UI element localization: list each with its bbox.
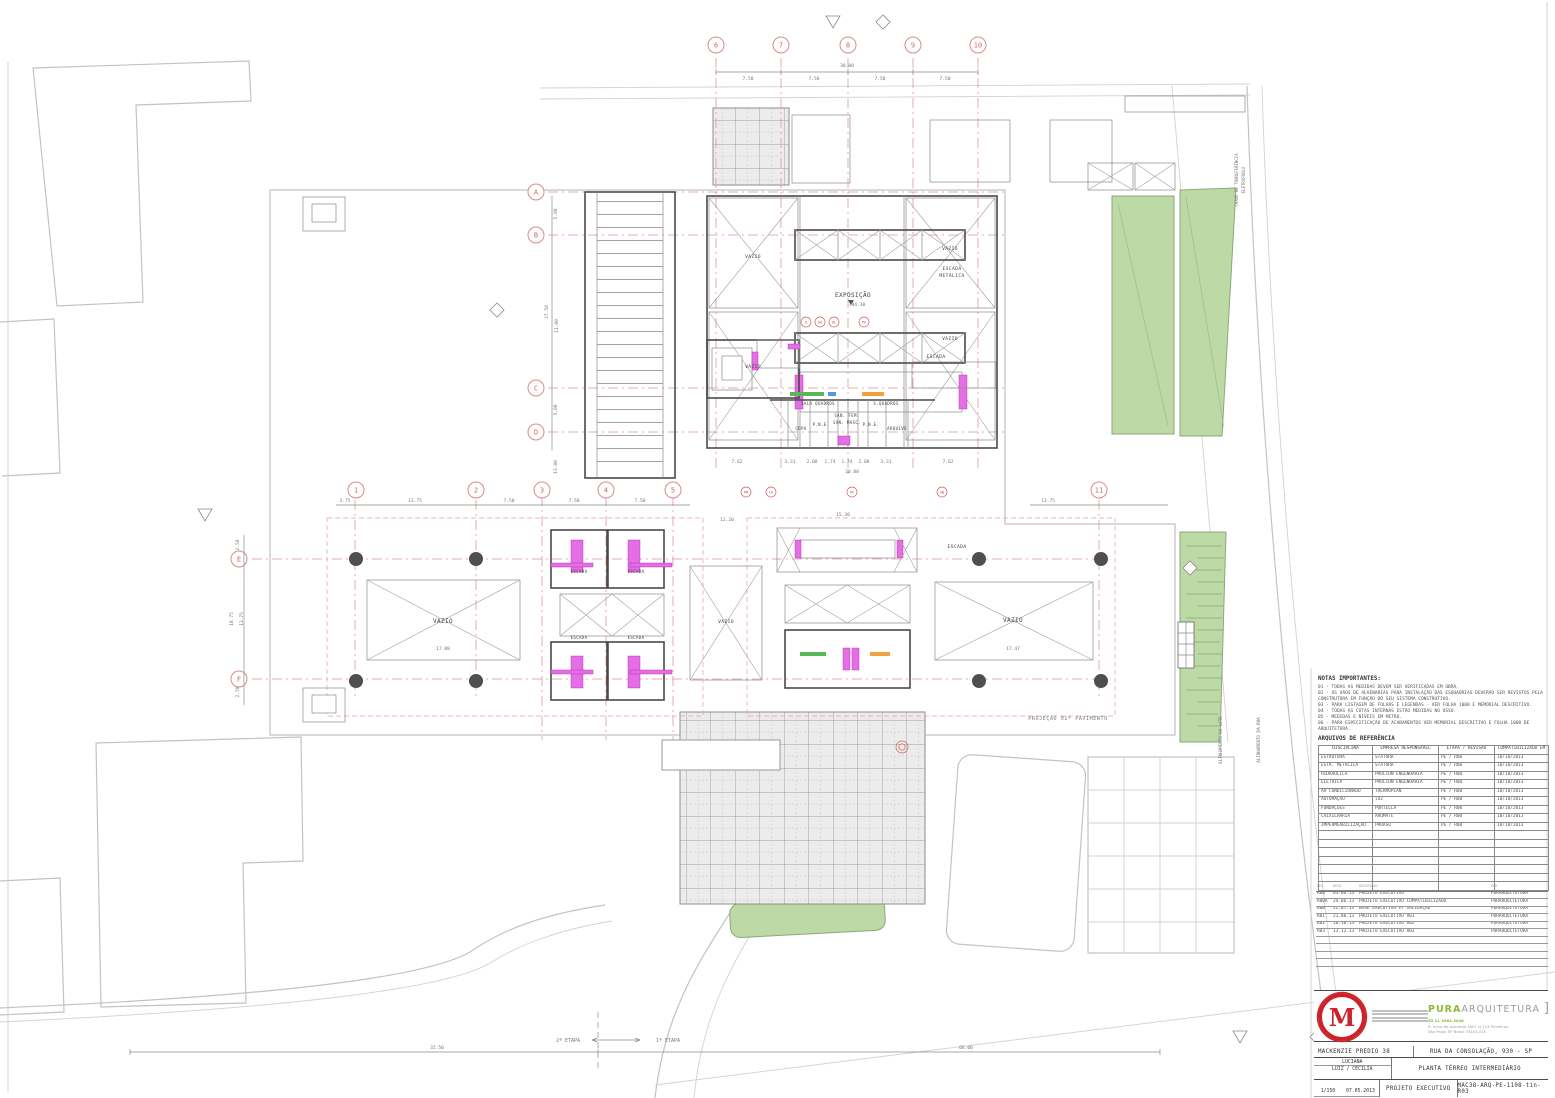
grid-col-2: 2 [474,487,478,495]
svg-text:1.74: 1.74 [824,459,835,465]
grid-col-1: 1 [354,487,358,495]
grid-row-D: D [534,429,538,437]
table-row: HIDRÁULICAPROCION ENGENHARIAPE / R0018/1… [1319,771,1549,780]
coordination-names: LUIZ / CECILIA [1314,1066,1391,1072]
chave-label-1: CHAVE DE TRANSFERÊNCIA [1234,153,1239,207]
table-row: R0121.08.13PROJETO EXECUTIVO R01PURARQUI… [1316,914,1548,922]
dim-total-top: 30.00 [840,63,854,69]
svg-text:7.50: 7.50 [808,76,819,82]
room-exposicao: EXPOSIÇÃO [835,292,871,299]
svg-text:7.62: 7.62 [942,459,953,465]
mackenzie-logo: M [1318,993,1366,1041]
table-row: ELÉTRICAPROCION ENGENHARIAPE / R0018/10/… [1319,780,1549,789]
grid-col-6: 6 [714,42,718,50]
grid-col-9: 9 [911,42,915,50]
svg-text:13.75: 13.75 [239,612,245,626]
project-phase: PROJETO EXECUTIVO [1379,1080,1457,1097]
table-row: R0003.06.13PROJETO EXECUTIVOPURARQUITETU… [1316,891,1548,899]
reference-files-block: ARQUIVOS DE REFERÊNCIA DISCIPLINA EMPRES… [1318,736,1552,891]
svg-text:7.50: 7.50 [939,76,950,82]
section-marker-icon [490,303,504,317]
room-sala-quadros: SALA QUADROS [801,401,835,406]
drawing-scale: 1/150 [1314,1080,1342,1097]
floor-slab-outline [270,190,1175,735]
svg-text:2.08: 2.08 [806,459,817,465]
table-row: R00A24.06.13PROJETO EXECUTIVO COMPATIBIL… [1316,899,1548,907]
svg-text:5.00: 5.00 [553,404,559,415]
room-labels: VAZIO VAZIO VAZIO VAZIO VAZIO VAZIO VAZI… [433,246,1023,640]
svg-text:ESCADA: ESCADA [628,569,645,574]
svg-text:ESCADA: ESCADA [571,635,588,640]
firm-phone: 55 11 3064.3048 [1428,1018,1464,1023]
etapa1-label: 1ª ETAPA [656,1038,680,1044]
table-row: R0313.12.13PROJETO EXECUTIVO R03PURARQUI… [1316,929,1548,937]
grid-col-11: 11 [1095,487,1103,495]
grid-row-C: C [534,385,538,393]
svg-text:VAZIO: VAZIO [942,336,958,342]
svg-text:VAZIO: VAZIO [745,254,761,260]
professors-micro-text [1372,1008,1428,1024]
svg-text:1.74: 1.74 [841,459,852,465]
svg-text:7.50: 7.50 [874,76,885,82]
table-row: AR CONDICIONADOTHERMOPLANPE / R0018/10/2… [1319,788,1549,797]
svg-text:PG: PG [862,321,866,325]
table-row: FUNDAÇÕESPORTELLAPE / R0018/10/2013 [1319,805,1549,814]
svg-text:COPA: COPA [795,426,806,431]
top-walkway [713,96,1245,190]
drawing-sheet: { "plan": { "grid": { "cols": ["1","2","… [0,0,1555,1098]
svg-text:A: A [805,321,808,325]
svg-text:VAZIO: VAZIO [1003,617,1023,624]
svg-text:7.50: 7.50 [742,76,753,82]
svg-text:3.31: 3.31 [784,459,795,465]
svg-text:27.50: 27.50 [544,305,550,319]
svg-text:2.50: 2.50 [235,539,241,550]
chave-label-2: ELETROPAULO [1241,166,1246,193]
svg-text:3.75: 3.75 [339,498,350,504]
firm-bracket: ] [1543,1001,1551,1016]
svg-text:11.00: 11.00 [554,319,560,333]
svg-text:17.88: 17.88 [436,646,450,652]
grid-row-E: E [237,556,241,564]
svg-text:2.50: 2.50 [235,686,241,697]
svg-text:PM: PM [744,491,749,495]
svg-text:CA: CA [769,491,774,495]
svg-text:7.62: 7.62 [731,459,742,465]
grid-col-7: 7 [779,42,783,50]
table-row: AUTOMAÇÃOid2PE / R0018/10/2013 [1319,797,1549,806]
svg-text:15.30: 15.30 [836,512,850,518]
grid-col-5: 5 [671,487,675,495]
title-block: M PURAARQUITETURA] 55 11 3064.3048 R. Ar… [1314,990,1548,1097]
table-row: IMPERMEABILIZAÇÃOPROASOPE / R0018/10/201… [1319,822,1549,831]
grid-col-10: 10 [974,42,982,50]
svg-text:7.50: 7.50 [634,498,645,504]
reference-table: DISCIPLINA EMPRESA RESPONSÁVEL ETAPA / R… [1318,745,1549,891]
svg-text:13.00: 13.00 [553,460,559,474]
project-name: MACKENZIE PREDIO 38 [1314,1046,1413,1057]
section-marker-icon [198,509,212,521]
skylight-roof-grid [662,712,925,904]
svg-text:METÁLICA: METÁLICA [939,272,964,279]
author-name: LUCIANA [1314,1058,1391,1066]
table-row: R0B22.07.13BASE EXECUTIVO P/ VALIDAÇÃOPU… [1316,906,1548,914]
table-row: ESTRUTURASTATURAPE / R0018/10/2013 [1319,754,1549,763]
svg-text:VAZIO: VAZIO [942,246,958,252]
svg-text:P.N.E.: P.N.E. [863,422,880,427]
svg-text:PE: PE [850,491,854,495]
svg-text:VAZIO: VAZIO [718,619,734,625]
grid-row-F: F [237,676,241,684]
svg-text:30.80: 30.80 [845,469,859,475]
alinhamento-lote-label: ALINHAMENTO DO LOTE [1218,716,1223,764]
alinhamento-rua-label: ALINHAMENTO DA RUA [1256,717,1261,763]
svg-text:ESCADA: ESCADA [571,569,588,574]
svg-text:ESCADA: ESCADA [628,635,645,640]
drawing-date: 07.05.2013 [1342,1080,1379,1097]
svg-text:VAZIO: VAZIO [433,618,453,625]
svg-text:13.75: 13.75 [408,498,422,504]
svg-text:AL: AL [832,321,836,325]
svg-text:7.50: 7.50 [503,498,514,504]
dim-etapa2: 32.50 [430,1045,444,1051]
svg-text:13.75: 13.75 [1041,498,1055,504]
table-row: R0218.10.13PROJETO EXECUTIVO R02PURARQUI… [1316,921,1548,929]
svg-text:12.20: 12.20 [720,517,734,523]
grid-col-4: 4 [604,487,608,495]
svg-text:ESCADA: ESCADA [927,354,946,360]
grid-col-3: 3 [540,487,544,495]
section-marker-icon [826,16,840,28]
projecao-label: PROJEÇÃO 01º PAVIMENTO [1028,715,1107,722]
svg-text:ESCADA: ESCADA [943,266,962,272]
middle-band [349,528,1108,700]
svg-text:GA: GA [818,321,823,325]
grid-col-8: 8 [846,42,850,50]
table-row: ESTR. METÁLICASTATURAPE / R0018/10/2013 [1319,763,1549,772]
svg-text:SAN. MASC.: SAN. MASC. [833,420,861,425]
project-address: RUA DA CONSOLAÇÃO, 930 - SP [1413,1046,1548,1057]
svg-text:3.31: 3.31 [880,459,891,465]
etapa2-label: 2ª ETAPA [556,1038,580,1044]
svg-text:GB: GB [940,491,944,495]
dim-etapa1: 66.00 [959,1045,973,1051]
svg-text:17.47: 17.47 [1006,646,1020,652]
firm-logo: PURAARQUITETURA] [1428,997,1551,1016]
svg-text:2.08: 2.08 [858,459,869,465]
revision-table: REV. DATA DESCRIÇÃO POR R0003.06.13PROJE… [1316,884,1548,967]
upper-building [707,196,997,448]
notes-block: NOTAS IMPORTANTES: 01 - TODAS AS MEDIDAS… [1318,676,1552,734]
revision-block: REV. DATA DESCRIÇÃO POR R0003.06.13PROJE… [1316,884,1550,967]
svg-text:P.N.E.: P.N.E. [813,422,830,427]
svg-text:VAZIO: VAZIO [745,364,761,370]
firm-address-1: R. Artur de Azevedo 1857 cj 114 Pinheiro… [1428,1024,1508,1029]
firm-address-2: São Paulo SP Brasil 05404-015 [1428,1029,1486,1034]
structural-grid-lines [252,58,1115,740]
detail-tags: A GA AL PG PM CA PE GB [741,317,947,497]
reference-title: ARQUIVOS DE REFERÊNCIA [1318,736,1552,742]
notes-title: NOTAS IMPORTANTES: [1318,676,1552,682]
svg-text:SAN. FEM.: SAN. FEM. [834,413,859,418]
section-marker-icon [1233,1031,1247,1043]
sheet-title: PLANTA TÉRREO INTERMEDIÁRIO [1392,1058,1549,1079]
grid-row-B: B [534,232,538,240]
svg-text:ARQUIVO: ARQUIVO [887,426,907,431]
table-row: CAIXILHARIAARQMATEPE / R0018/10/2013 [1319,814,1549,823]
section-marker-icon [876,15,890,29]
svg-text:18.75: 18.75 [229,612,235,626]
svg-text:S.QUADROS: S.QUADROS [873,401,898,406]
document-number: MAC38-ARQ-PE-1108-tin-R03 [1457,1080,1548,1097]
svg-text:ESCADA: ESCADA [948,544,967,550]
svg-text:5.00: 5.00 [553,208,559,219]
svg-text:7.50: 7.50 [568,498,579,504]
